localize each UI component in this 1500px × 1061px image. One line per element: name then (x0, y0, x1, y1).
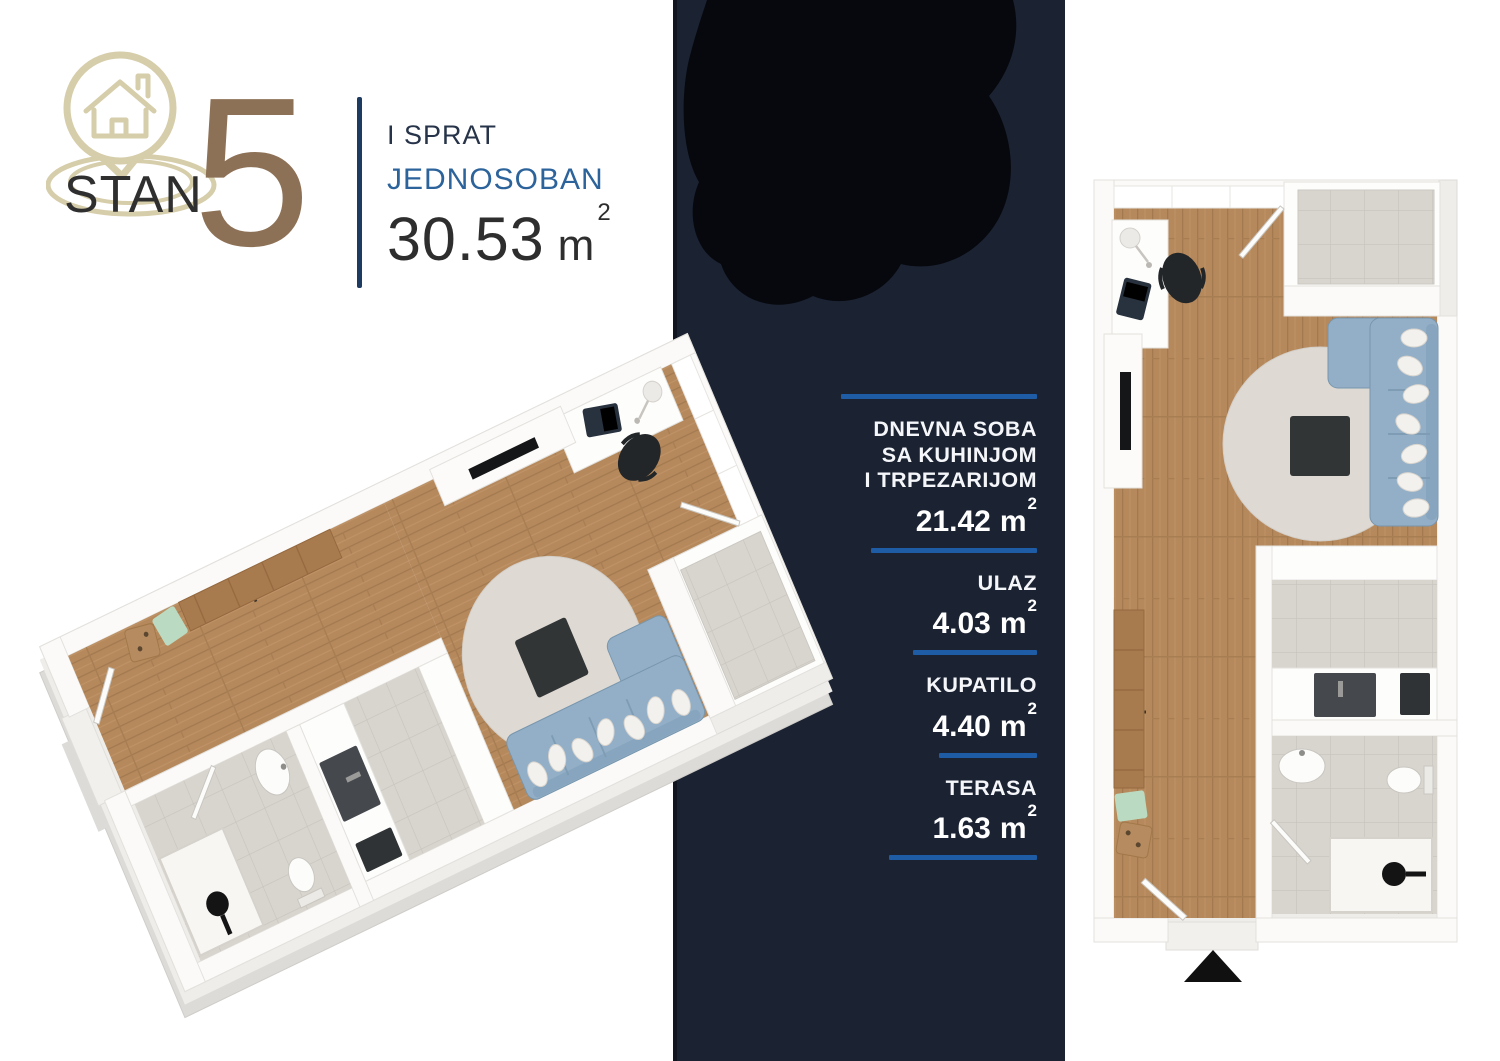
room-area: 4.03m2 (932, 599, 1037, 642)
room-name: KUPATILO (926, 673, 1037, 699)
room-name: DNEVNA SOBA SA KUHINJOM I TRPEZARIJOM (864, 417, 1037, 494)
room-list: DNEVNA SOBA SA KUHINJOM I TRPEZARIJOM 21… (677, 394, 1069, 860)
room-entry-kupatilo: KUPATILO 4.40m2 (926, 673, 1037, 745)
logo-pin-circle (67, 55, 173, 161)
room-name: TERASA (932, 776, 1037, 802)
entrance-arrow-icon (1184, 950, 1242, 982)
dark-blob-decoration (677, 0, 1069, 360)
room-entry-terasa: TERASA 1.63m2 (932, 776, 1037, 848)
room-area: 1.63m2 (932, 804, 1037, 847)
divider-rule (889, 855, 1037, 860)
divider-rule (841, 394, 1037, 399)
total-area-value: 30.53 (387, 208, 545, 270)
divider-rule (913, 650, 1037, 655)
room-area: 4.40m2 (926, 702, 1037, 745)
room-entry-dnevna-soba: DNEVNA SOBA SA KUHINJOM I TRPEZARIJOM 21… (864, 417, 1037, 540)
room-area: 21.42m2 (864, 497, 1037, 540)
floor-plan-2d (1092, 176, 1462, 988)
room-name: ULAZ (932, 571, 1037, 597)
floor-label: I SPRAT (387, 120, 611, 150)
brochure-page: STAN 5 I SPRAT JEDNOSOBAN 30.53 m2 DNEVN… (0, 0, 1500, 1061)
unit-type: JEDNOSOBAN (387, 164, 611, 196)
header-text: I SPRAT JEDNOSOBAN 30.53 m2 (387, 120, 611, 271)
unit-number: 5 (193, 66, 307, 278)
divider-rule (871, 548, 1037, 553)
brand-name: STAN (64, 166, 203, 224)
total-area: 30.53 m2 (387, 208, 611, 271)
info-band: DNEVNA SOBA SA KUHINJOM I TRPEZARIJOM 21… (673, 0, 1065, 1061)
room-entry-ulaz: ULAZ 4.03m2 (932, 571, 1037, 643)
divider-rule (939, 753, 1037, 758)
header-divider (357, 97, 362, 288)
total-area-unit: m2 (558, 221, 611, 271)
